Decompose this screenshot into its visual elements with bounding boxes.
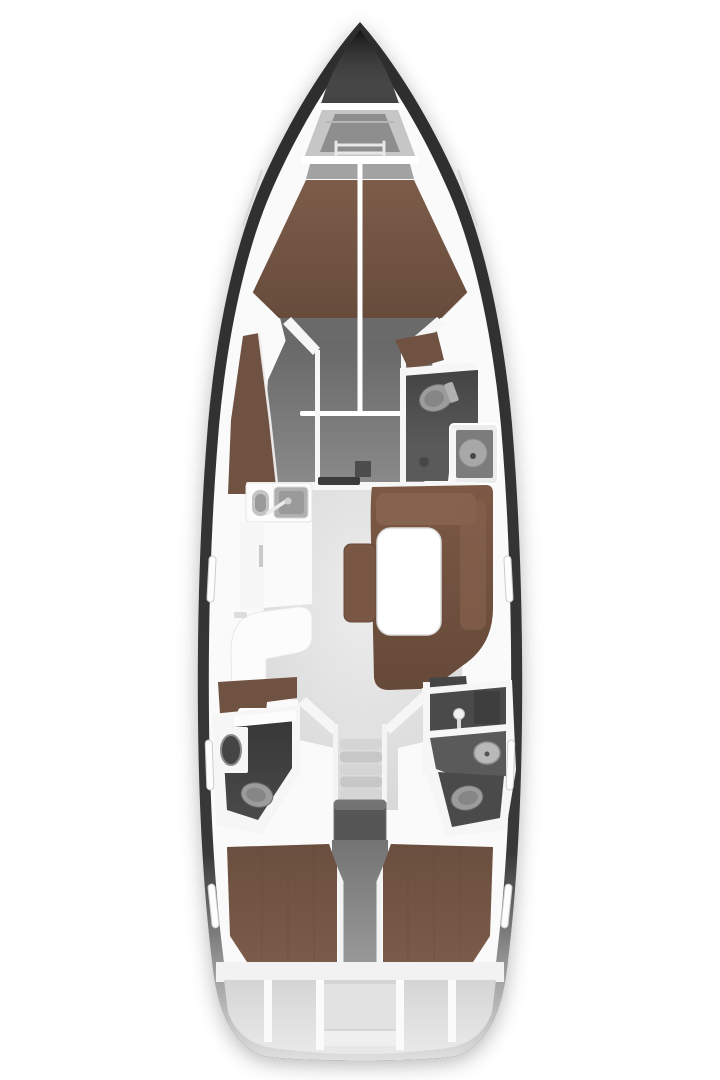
galley-faucet-base — [285, 498, 292, 505]
stern-band — [216, 962, 504, 982]
engine-box-top — [334, 800, 386, 810]
stern-section — [216, 962, 504, 1054]
saloon-table — [377, 528, 441, 635]
step-rail-starboard — [382, 724, 387, 802]
fwd-shower-door — [450, 428, 456, 482]
fwd-wall-port — [315, 350, 320, 486]
galley-seat-handle — [234, 612, 247, 618]
floor-hatch — [355, 461, 371, 477]
yacht-floor-plan: Top-down interior layout plan of a saili… — [0, 0, 720, 1080]
yacht-floor-plan-svg: Top-down interior layout plan of a saili… — [0, 0, 720, 1080]
transom-center-shelf — [324, 1030, 396, 1046]
v-berth-center-seam — [358, 164, 363, 412]
center-bench — [344, 544, 376, 622]
fwd-head-drain — [419, 457, 429, 467]
galley-counter-tick — [259, 545, 263, 567]
galley-basin-small-inner — [255, 494, 266, 512]
fwd-head-wall-left — [400, 368, 406, 486]
stbd-shower-locker — [474, 691, 500, 724]
port-aft-berth-shade — [227, 844, 337, 964]
port-head-basin — [221, 735, 241, 765]
companionway-landing — [338, 724, 382, 738]
fwd-shower-drain — [470, 453, 476, 459]
bow-sill — [317, 103, 403, 110]
stbd-basin-drain — [485, 752, 490, 757]
companionway-steps — [340, 739, 382, 800]
forepeak-sill — [301, 156, 419, 164]
fwd-head-floor-lower — [406, 446, 452, 481]
starboard-aft-berth-shade — [383, 844, 493, 964]
stbd-deck-slit-2 — [506, 740, 515, 790]
bulkhead-door-slot — [318, 477, 360, 485]
settee-right-cushion — [460, 500, 486, 630]
aft-cabins — [227, 840, 493, 970]
step-rail-port — [333, 724, 338, 802]
showerhead — [454, 709, 465, 720]
port-deck-slit-2 — [205, 740, 214, 790]
